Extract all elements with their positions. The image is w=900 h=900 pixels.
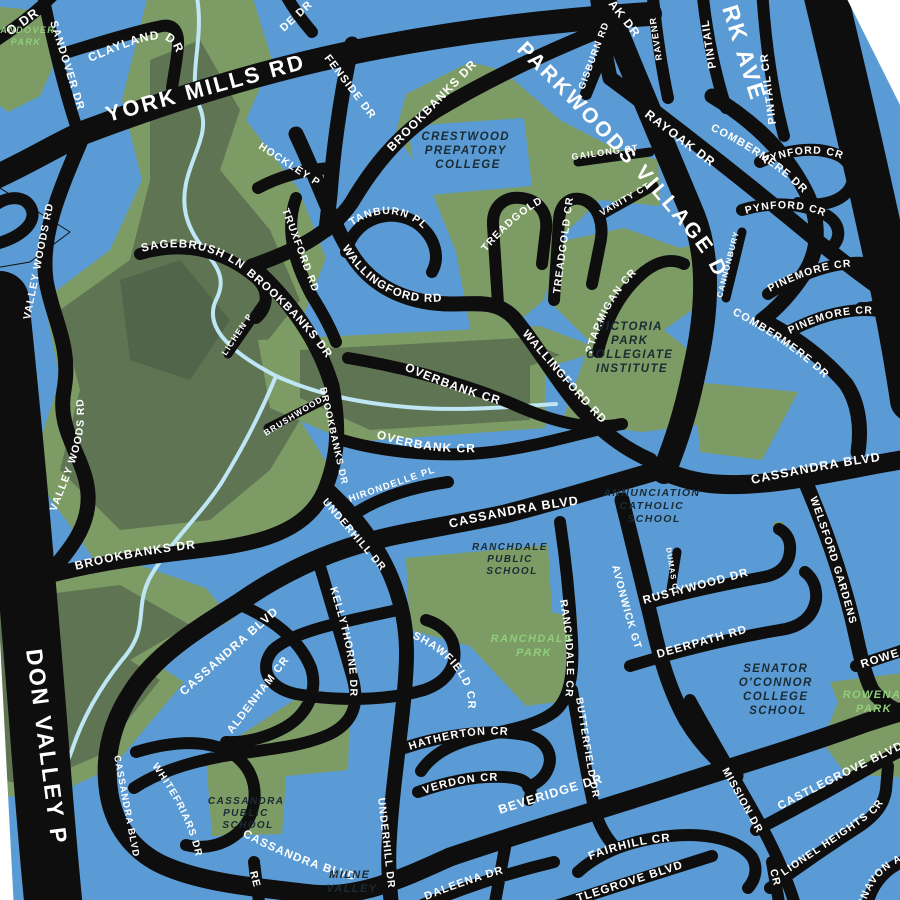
- map-canvas: YORK MILLS RD PARKWOODS VILLAGE DR RK AV…: [0, 0, 900, 900]
- label-crestwood-prepatory-college: CRESTWOOD PREPATORY COLLEGE: [421, 131, 514, 171]
- crestwood-label-patch: [408, 118, 532, 196]
- map-poster: YORK MILLS RD PARKWOODS VILLAGE DR RK AV…: [0, 0, 900, 900]
